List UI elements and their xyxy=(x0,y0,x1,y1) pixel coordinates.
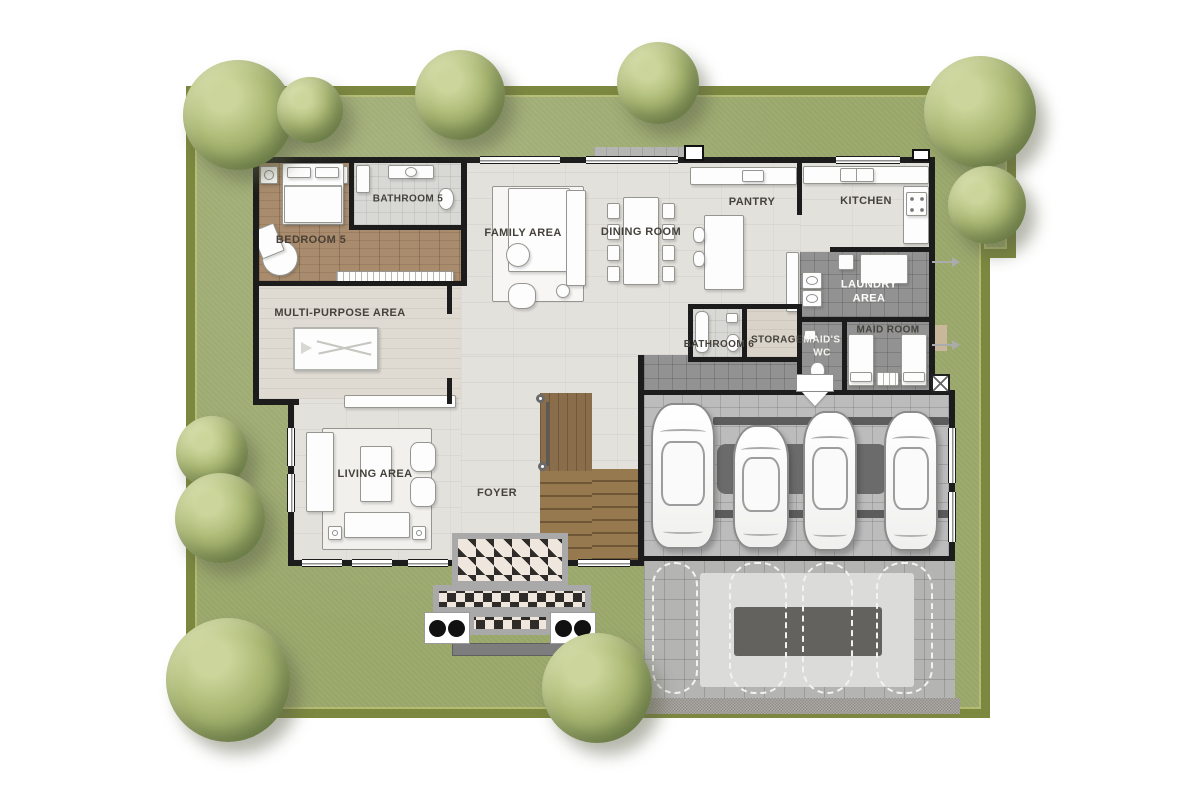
room-label-family-area: FAMILY AREA xyxy=(484,227,561,239)
pantry-island xyxy=(704,215,744,290)
car-roof xyxy=(742,457,779,512)
window xyxy=(578,559,630,567)
wall xyxy=(349,225,467,230)
room-label-foyer: FOYER xyxy=(477,487,517,499)
side-table xyxy=(556,284,570,298)
room-label-bedroom5: BEDROOM 5 xyxy=(276,234,346,246)
parking-stall-outline xyxy=(729,562,787,694)
shaft-marker xyxy=(931,374,950,393)
wall xyxy=(797,157,802,215)
tree xyxy=(617,42,699,124)
tree xyxy=(924,56,1036,168)
tree xyxy=(175,473,265,563)
car-rear-window xyxy=(743,531,778,536)
window xyxy=(480,156,560,164)
car-windshield xyxy=(811,436,849,442)
garage-door-marker-arrow xyxy=(802,392,828,406)
room-label-maids-wc: MAID'S WC xyxy=(799,335,845,360)
window xyxy=(948,492,956,542)
parking-stall-outline xyxy=(652,562,698,694)
porch-planter xyxy=(424,612,470,644)
car-windshield xyxy=(660,429,706,435)
room-label-living-area: LIVING AREA xyxy=(338,468,413,480)
dining-chair xyxy=(662,245,675,261)
room-label-kitchen: KITCHEN xyxy=(840,195,892,207)
room-label-bathroom6: BATHROOM 6 xyxy=(682,339,756,352)
porch-checker-top xyxy=(452,533,568,587)
room-label-pantry: PANTRY xyxy=(729,196,775,208)
dining-chair xyxy=(607,245,620,261)
tree xyxy=(415,50,505,140)
wall xyxy=(688,304,693,362)
dining-chair xyxy=(607,203,620,219)
wall xyxy=(461,157,467,286)
billiard-rack xyxy=(301,342,312,354)
ac-unit xyxy=(912,149,930,161)
wall xyxy=(644,556,955,561)
bed-pillow xyxy=(287,167,311,178)
dining-table xyxy=(623,197,659,285)
tree xyxy=(166,618,290,742)
double-sink xyxy=(840,168,874,182)
armchair xyxy=(508,283,536,309)
tree xyxy=(277,77,343,143)
washing-machine xyxy=(802,290,822,307)
shower xyxy=(356,165,370,193)
sink xyxy=(726,313,738,323)
car-sedan xyxy=(884,411,938,551)
car-windshield xyxy=(892,436,930,442)
window xyxy=(287,428,295,466)
window xyxy=(948,428,956,483)
porch-checker-mid xyxy=(433,585,591,613)
gravel-strip xyxy=(644,698,960,714)
sofa-back xyxy=(566,190,586,286)
room-label-maid-room: MAID ROOM xyxy=(856,325,919,336)
garage-door-marker xyxy=(796,374,834,392)
room-label-bathroom5: BATHROOM 5 xyxy=(373,194,443,205)
car-sports xyxy=(733,425,789,549)
stool xyxy=(693,251,705,267)
bed-blanket xyxy=(284,185,342,223)
entry-arrow-icon xyxy=(932,261,958,263)
tree xyxy=(542,633,652,743)
wall xyxy=(830,247,935,252)
car-rear-window xyxy=(894,532,928,537)
wall xyxy=(742,304,747,362)
wall xyxy=(638,355,644,566)
corner-sofa xyxy=(306,432,334,512)
window xyxy=(287,474,295,512)
wall xyxy=(447,286,452,314)
sideboard xyxy=(344,395,456,408)
car-roof xyxy=(661,441,704,506)
window xyxy=(836,156,900,164)
window xyxy=(586,156,678,164)
stair-volute xyxy=(538,462,547,471)
parking-stall-outline xyxy=(876,562,933,694)
car-rear-window xyxy=(663,529,704,534)
wall xyxy=(800,317,935,322)
window xyxy=(352,559,392,567)
floor-speaker xyxy=(328,526,342,540)
room-label-dining-room: DINING ROOM xyxy=(601,226,681,238)
bed-pillow xyxy=(315,167,339,178)
dining-chair xyxy=(662,203,675,219)
tall-cabinet xyxy=(786,252,799,312)
dining-chair xyxy=(607,266,620,282)
floor-speaker xyxy=(412,526,426,540)
stair-volute xyxy=(536,394,545,403)
sink xyxy=(405,167,417,177)
stove xyxy=(906,192,927,216)
wall xyxy=(929,157,935,322)
car-rear-window xyxy=(813,532,847,537)
washing-machine xyxy=(802,272,822,289)
car-suv xyxy=(651,403,715,549)
room-label-storage: STORAGE xyxy=(751,335,803,346)
window xyxy=(302,559,342,567)
floor-plan-canvas: BEDROOM 5 BATHROOM 5 FAMILY AREA DINING … xyxy=(0,0,1200,800)
room-label-multi-purpose: MULTI-PURPOSE AREA xyxy=(274,307,405,319)
wall xyxy=(349,157,354,230)
car-roof xyxy=(812,447,848,510)
tree xyxy=(948,166,1026,244)
shelf xyxy=(876,372,899,386)
car-sedan xyxy=(803,411,857,551)
dining-chair xyxy=(662,266,675,282)
wall xyxy=(253,157,467,163)
stair-flight xyxy=(592,469,640,561)
bench xyxy=(344,512,410,538)
bed-pillow xyxy=(903,372,925,382)
entry-arrow-icon xyxy=(932,344,958,346)
stair-railing xyxy=(546,402,549,466)
car-roof xyxy=(893,447,929,510)
wall xyxy=(447,378,452,404)
car-windshield xyxy=(741,447,781,453)
window xyxy=(408,559,448,567)
porch-step xyxy=(452,643,568,656)
wall xyxy=(253,157,259,405)
pantry-sink xyxy=(742,170,764,182)
armchair xyxy=(410,442,436,472)
laundry-sink xyxy=(838,254,854,270)
ceiling-fixture xyxy=(260,166,278,184)
armchair xyxy=(410,477,436,507)
coffee-table xyxy=(506,243,530,267)
parking-stall-outline xyxy=(802,562,853,694)
wall xyxy=(253,281,467,286)
porch-checker-bottom xyxy=(468,611,552,635)
ac-unit xyxy=(684,145,704,161)
stool xyxy=(693,227,705,243)
bed-pillow xyxy=(850,372,872,382)
room-label-laundry-area: LAUNDRY AREA xyxy=(837,278,901,306)
